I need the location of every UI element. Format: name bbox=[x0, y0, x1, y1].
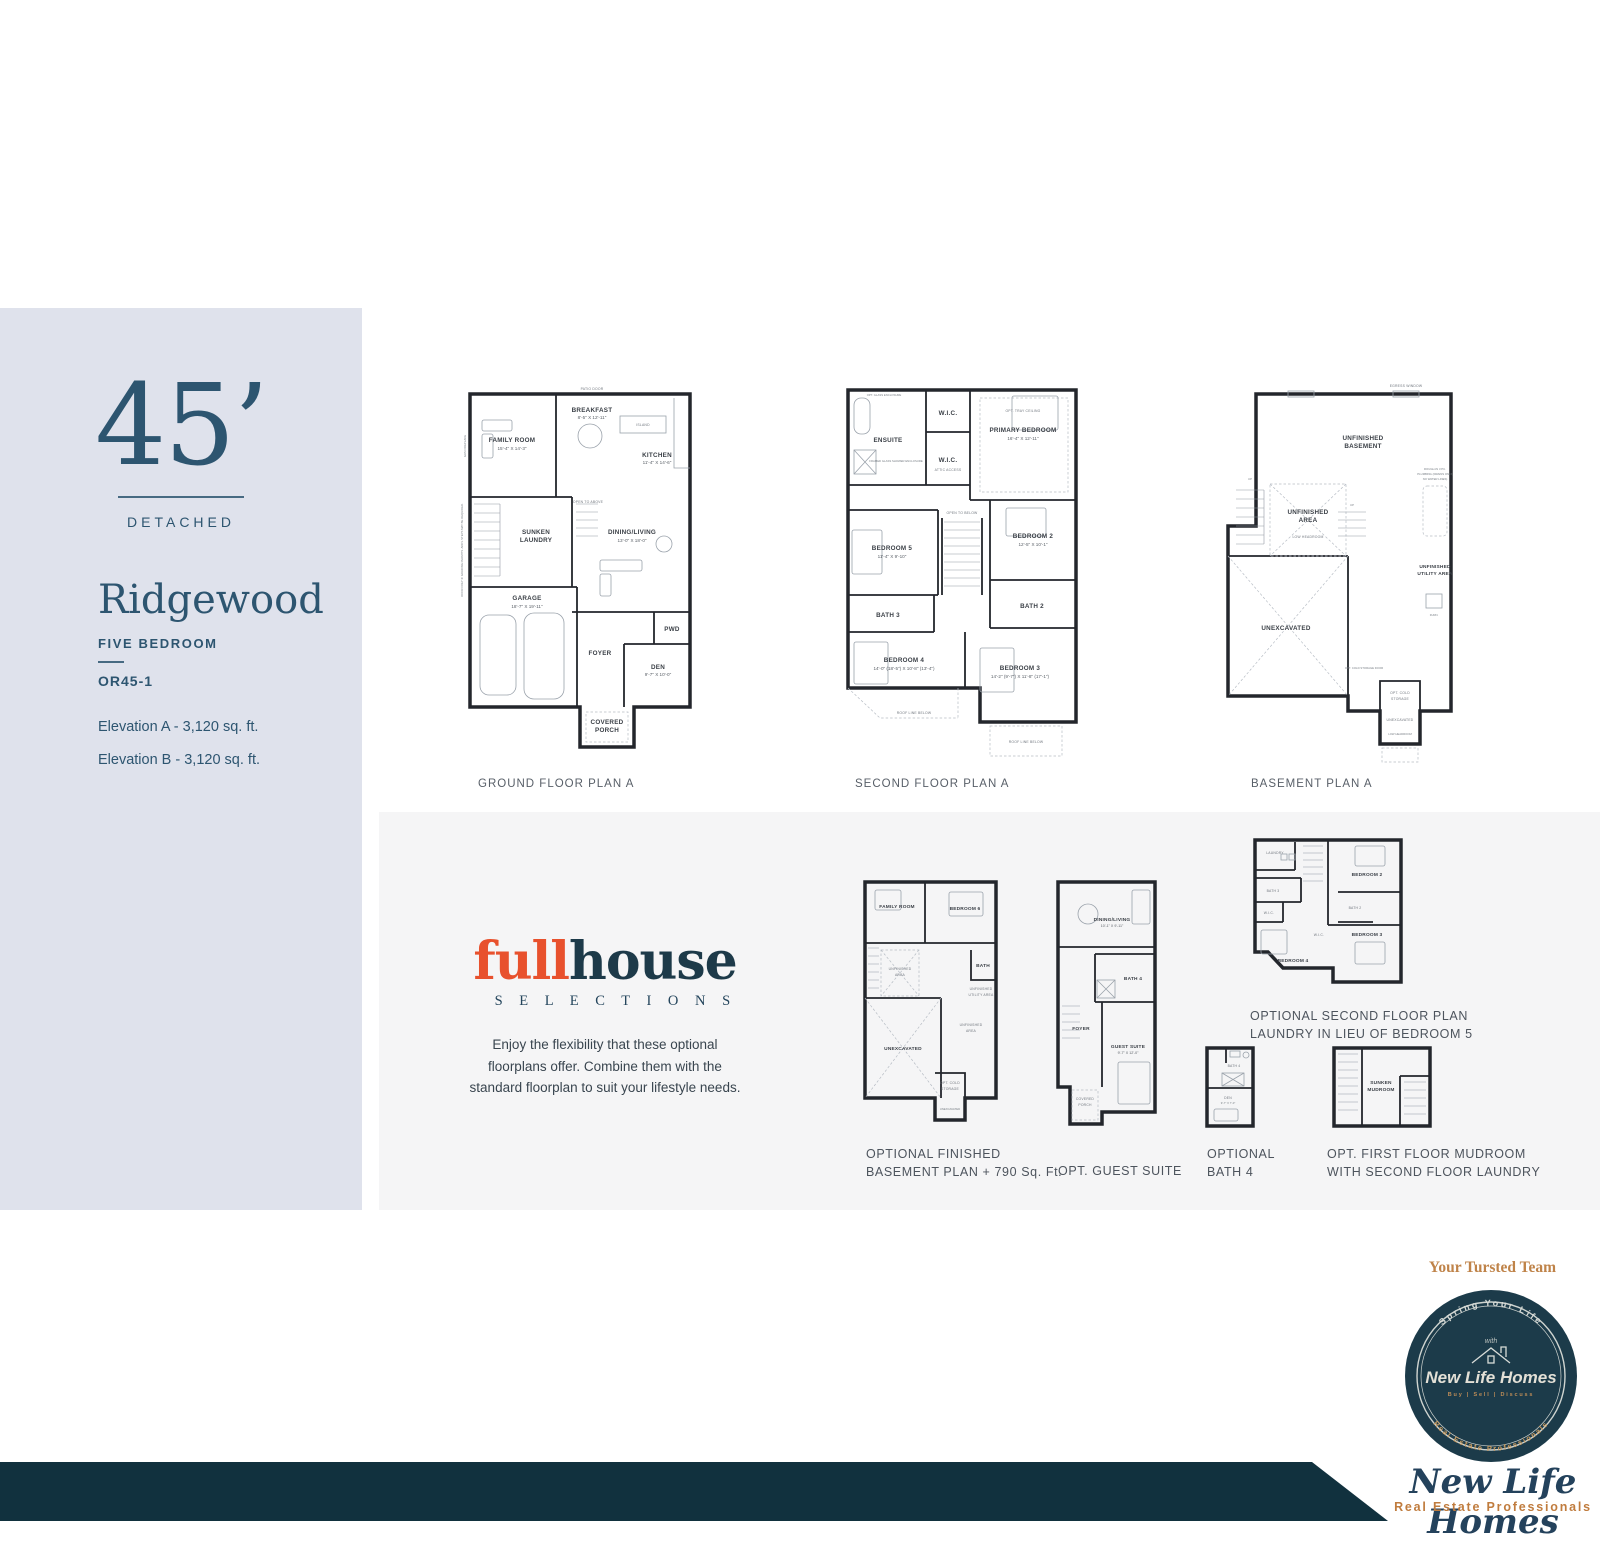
room-dim: 11'-4" X 14'-6" bbox=[643, 460, 672, 465]
lot-width: 45’ bbox=[71, 370, 291, 482]
room-label: BATH 4 bbox=[1228, 1064, 1241, 1068]
room-label: UTILITY AREA bbox=[1417, 571, 1453, 577]
note-label: UP bbox=[1248, 477, 1252, 481]
optional-basement-caption: OPTIONAL FINISHED BASEMENT PLAN + 790 Sq… bbox=[866, 1145, 1062, 1181]
note-label: OPT. GLASS ENCLOSURE bbox=[867, 393, 902, 397]
room-label: UNFINISHED bbox=[960, 1023, 983, 1027]
room-label: MUDROOM bbox=[1367, 1087, 1394, 1093]
room-label: STORAGE bbox=[1391, 697, 1409, 701]
ground-floor-plan: FAMILY ROOM 15'-4" X 14'-3" BREAKFAST 8'… bbox=[452, 372, 708, 762]
walls bbox=[1334, 1048, 1430, 1126]
room-dim: 12'-5" X 10'-1" bbox=[1018, 542, 1047, 547]
optional-mudroom-caption: OPT. FIRST FLOOR MUDROOM WITH SECOND FLO… bbox=[1327, 1145, 1540, 1181]
note-label: FURN. bbox=[1430, 613, 1439, 617]
model-divider bbox=[98, 661, 124, 663]
optional-guest-caption: OPT. GUEST SUITE bbox=[1058, 1162, 1182, 1180]
room-dim: 9'-7" X 10'-0" bbox=[645, 672, 672, 677]
room-label: SUNKEN bbox=[1370, 1080, 1392, 1086]
signature-tagline: Real Estate Professionals bbox=[1393, 1500, 1593, 1514]
lot-width-divider bbox=[118, 496, 244, 498]
room-label: OPT. COLD bbox=[940, 1081, 960, 1085]
room-dim: 16'-4" X 12'-11" bbox=[1007, 436, 1039, 441]
fullhouse-desc-line: Enjoy the flexibility that these optiona… bbox=[425, 1034, 785, 1056]
optional-bath4-caption: OPTIONAL BATH 4 bbox=[1207, 1145, 1275, 1181]
walls bbox=[1228, 394, 1451, 744]
stairs bbox=[1236, 391, 1442, 608]
model-name: Ridgewood bbox=[98, 578, 338, 622]
note-label: ROUGH-IN 3 PC. bbox=[1424, 467, 1446, 471]
room-dim: 9'-7" X 12'-0" bbox=[1118, 1051, 1139, 1055]
room-label: UNEXCAVATED bbox=[940, 1107, 960, 1111]
note-label: OPEN TO BELOW bbox=[947, 511, 979, 515]
note-label: OPT. COLD STORAGE DOOR bbox=[1345, 666, 1383, 670]
note-label: GAS FIREPLACE bbox=[463, 435, 467, 457]
model-info-sidebar: 45’ DETACHED Ridgewood FIVE BEDROOM OR45… bbox=[0, 308, 362, 1210]
island-label: ISLAND bbox=[636, 423, 650, 427]
lot-width-block: 45’ DETACHED bbox=[71, 370, 291, 530]
room-label: FAMILY ROOM bbox=[489, 437, 535, 444]
note-label: NO WATER LINES) bbox=[1423, 477, 1448, 481]
room-label: OPT. COLD bbox=[1390, 691, 1410, 695]
room-label: ENSUITE bbox=[873, 437, 902, 444]
optional-second-floor-plan: LAUNDRY BATH 3 W.I.C. BEDROOM 4 W.I.C. B… bbox=[1243, 830, 1410, 1000]
optional-guest-suite-plan: DINING/LIVING 10'-1" X 9'-11" BATH 4 FOY… bbox=[1040, 872, 1165, 1132]
room-label: UNFINISHED bbox=[970, 987, 993, 991]
room-label: PORCH bbox=[1078, 1103, 1092, 1107]
room-label: W.I.C. bbox=[1314, 933, 1324, 937]
fullhouse-logo-house: house bbox=[569, 931, 737, 992]
note-label: OPT. TRAY CEILING bbox=[1005, 409, 1040, 413]
fullhouse-desc-line: standard floorplan to suit your lifestyl… bbox=[425, 1077, 785, 1099]
hatching bbox=[865, 890, 983, 1098]
caption-line: OPTIONAL SECOND FLOOR PLAN bbox=[1250, 1007, 1473, 1025]
note-label: LOW HEADROOM bbox=[1388, 732, 1412, 736]
room-label: AREA bbox=[966, 1029, 977, 1033]
room-label: UNEXCAVATED bbox=[1387, 718, 1414, 722]
note-label: PLUMBING (DRAINS ONLY, bbox=[1417, 472, 1453, 476]
room-label: DEN bbox=[1224, 1096, 1232, 1100]
elevation-info: Elevation A - 3,120 sq. ft. Elevation B … bbox=[98, 711, 338, 778]
note-label: PATIO DOOR bbox=[581, 387, 604, 391]
note-label: LOW HEADROOM bbox=[1292, 535, 1323, 539]
room-dim: 11'-4" X 9'-10" bbox=[878, 554, 907, 559]
room-label: W.I.C. bbox=[1264, 911, 1274, 915]
room-label: BEDROOM 5 bbox=[872, 545, 913, 552]
optional-mudroom-plan: SUNKEN MUDROOM bbox=[1328, 1042, 1436, 1132]
room-dim: 8'-5" X 12'-11" bbox=[578, 415, 607, 420]
room-label: UNEXCAVATED bbox=[884, 1046, 922, 1052]
note-label: FRAMED GLASS SHOWER ENCLOSURE bbox=[869, 459, 923, 463]
badge-name: New Life Homes bbox=[1425, 1368, 1556, 1387]
room-label: BATH 4 bbox=[1124, 976, 1142, 982]
room-label: BATH 2 bbox=[1349, 906, 1362, 910]
room-label: UTILITY AREA bbox=[969, 993, 994, 997]
basement-plan-caption: BASEMENT PLAN A bbox=[1251, 778, 1373, 790]
note-label: ROOF LINE BELOW bbox=[897, 711, 932, 715]
room-label: GARAGE bbox=[512, 595, 541, 602]
model-block: Ridgewood FIVE BEDROOM OR45-1 Elevation … bbox=[98, 578, 338, 778]
optional-bath4-plan: BATH 4 DEN 9'-7" X 7'-0" bbox=[1202, 1043, 1258, 1131]
room-dim: 15'-4" X 14'-3" bbox=[497, 446, 526, 451]
room-label: BEDROOM 4 bbox=[884, 657, 925, 664]
room-label: AREA bbox=[895, 973, 906, 977]
details bbox=[1214, 1051, 1249, 1121]
caption-line: BATH 4 bbox=[1207, 1163, 1275, 1181]
note-label: DOOR ONLY IF GRADING PERMITS. ADD'L STEP… bbox=[460, 503, 464, 597]
room-labels: FAMILY ROOM BEDROOM 6 UNFINISHED AREA BA… bbox=[879, 904, 994, 1111]
room-label: GUEST SUITE bbox=[1111, 1044, 1146, 1050]
room-label: SUNKEN bbox=[522, 529, 550, 536]
trusted-team-label: Your Tursted Team bbox=[1395, 1259, 1590, 1277]
room-label: DEN bbox=[651, 664, 665, 671]
room-label: BEDROOM 4 bbox=[1278, 958, 1309, 964]
caption-line: OPT. GUEST SUITE bbox=[1058, 1162, 1182, 1180]
elevation-b: Elevation B - 3,120 sq. ft. bbox=[98, 744, 338, 777]
room-dim: 14'-2" (9'-7") X 11'-8" (17'-1") bbox=[991, 674, 1050, 679]
caption-line: OPTIONAL bbox=[1207, 1145, 1275, 1163]
second-plan-caption: SECOND FLOOR PLAN A bbox=[855, 778, 1009, 790]
room-label: COVERED bbox=[591, 719, 624, 726]
caption-line: OPT. FIRST FLOOR MUDROOM bbox=[1327, 1145, 1540, 1163]
room-label: UNEXCAVATED bbox=[1261, 625, 1310, 632]
room-label: BEDROOM 3 bbox=[1352, 932, 1383, 938]
room-label: UNFINISHED bbox=[889, 967, 912, 971]
caption-line: BASEMENT PLAN + 790 Sq. Ft. bbox=[866, 1163, 1062, 1181]
room-labels: LAUNDRY BATH 3 W.I.C. BEDROOM 4 W.I.C. B… bbox=[1264, 851, 1383, 964]
room-label: DINING/LIVING bbox=[608, 529, 656, 536]
room-label: UNFINISHED bbox=[1288, 509, 1329, 516]
model-code: OR45-1 bbox=[98, 673, 338, 689]
room-label: LAUNDRY bbox=[520, 537, 553, 544]
room-label: COVERED bbox=[1076, 1097, 1095, 1101]
room-label: W.I.C. bbox=[939, 410, 958, 417]
room-dim: 13'-0" X 18'-0" bbox=[617, 538, 646, 543]
room-label: BATH bbox=[976, 963, 990, 969]
room-label: BATH 3 bbox=[1267, 889, 1280, 893]
bedroom-count-label: FIVE BEDROOM bbox=[98, 636, 338, 651]
note-label: UP bbox=[1350, 503, 1354, 507]
room-label: BEDROOM 2 bbox=[1013, 533, 1054, 540]
room-label: FOYER bbox=[589, 650, 612, 657]
second-floor-plan: ENSUITE W.I.C. W.I.C. ATTIC ACCESS OPT. … bbox=[830, 370, 1092, 765]
fullhouse-logo: fullhouse S E L E C T I O N S bbox=[473, 936, 736, 1009]
fullhouse-block: fullhouse S E L E C T I O N S Enjoy the … bbox=[425, 936, 785, 1099]
fullhouse-description: Enjoy the flexibility that these optiona… bbox=[425, 1034, 785, 1099]
note-label: EGRESS WINDOW bbox=[1390, 384, 1423, 388]
room-label: UNFINISHED bbox=[1419, 564, 1451, 570]
room-label: PRIMARY BEDROOM bbox=[989, 427, 1056, 434]
room-label: BREAKFAST bbox=[572, 407, 613, 414]
footer-ribbon bbox=[0, 1462, 1600, 1521]
caption-line: WITH SECOND FLOOR LAUNDRY bbox=[1327, 1163, 1540, 1181]
optional-second-caption: OPTIONAL SECOND FLOOR PLAN LAUNDRY IN LI… bbox=[1250, 1007, 1473, 1043]
room-label: PWD bbox=[664, 626, 680, 633]
room-label: BEDROOM 6 bbox=[950, 906, 981, 912]
room-label: STORAGE bbox=[941, 1087, 959, 1091]
home-type-label: DETACHED bbox=[71, 514, 291, 530]
room-label: LAUNDRY bbox=[1266, 851, 1284, 855]
room-label: FOYER bbox=[1072, 1026, 1090, 1032]
room-label: KITCHEN bbox=[642, 452, 672, 459]
fullhouse-selections-label: S E L E C T I O N S bbox=[473, 994, 736, 1009]
note-label: ATTIC ACCESS bbox=[935, 468, 962, 472]
ground-plan-caption: GROUND FLOOR PLAN A bbox=[478, 778, 634, 790]
room-label: FAMILY ROOM bbox=[879, 904, 915, 910]
fullhouse-logo-full: full bbox=[473, 931, 569, 992]
note-label: OPEN TO ABOVE bbox=[573, 500, 604, 504]
basement-plan: UNFINISHED BASEMENT UNFINISHED AREA LOW … bbox=[1198, 366, 1483, 766]
room-label: AREA bbox=[1299, 517, 1318, 524]
details bbox=[1261, 846, 1385, 964]
room-label: DINING/LIVING bbox=[1094, 917, 1131, 923]
roof-lines bbox=[848, 398, 1068, 756]
stairs bbox=[944, 522, 980, 586]
room-label: BATH 2 bbox=[1020, 603, 1044, 610]
badge-with-word: with bbox=[1485, 1338, 1498, 1345]
room-dim: 10'-1" X 9'-11" bbox=[1101, 924, 1124, 928]
room-labels: UNFINISHED BASEMENT UNFINISHED AREA LOW … bbox=[1248, 384, 1453, 736]
caption-line: OPTIONAL FINISHED bbox=[866, 1145, 1062, 1163]
room-label: PORCH bbox=[595, 727, 619, 734]
room-label: BEDROOM 3 bbox=[1000, 665, 1041, 672]
room-labels: BATH 4 DEN 9'-7" X 7'-0" bbox=[1221, 1064, 1241, 1105]
room-label: W.I.C. bbox=[939, 457, 958, 464]
room-dim: 14'-0" (18'-5") X 10'-8" (13'-4") bbox=[873, 666, 935, 671]
new-life-homes-badge: Spring Your Life with New Life Homes Buy… bbox=[1398, 1283, 1584, 1469]
room-labels: FAMILY ROOM 15'-4" X 14'-3" BREAKFAST 8'… bbox=[460, 387, 680, 734]
room-dim: 18'-7" X 19'-11" bbox=[511, 604, 543, 609]
room-labels: DINING/LIVING 10'-1" X 9'-11" BATH 4 FOY… bbox=[1072, 917, 1145, 1107]
fullhouse-desc-line: floorplans offer. Combine them with the bbox=[425, 1056, 785, 1078]
caption-line: LAUNDRY IN LIEU OF BEDROOM 5 bbox=[1250, 1025, 1473, 1043]
badge-services: Buy | Sell | Discuss bbox=[1448, 1392, 1534, 1398]
optional-basement-plan: FAMILY ROOM BEDROOM 6 UNFINISHED AREA BA… bbox=[853, 868, 1008, 1128]
room-label: BASEMENT bbox=[1344, 443, 1381, 450]
room-labels: SUNKEN MUDROOM bbox=[1367, 1080, 1394, 1093]
room-dim: 9'-7" X 7'-0" bbox=[1221, 1101, 1236, 1105]
note-label: ROOF LINE BELOW bbox=[1009, 740, 1044, 744]
elevation-a: Elevation A - 3,120 sq. ft. bbox=[98, 711, 338, 744]
room-label: UNFINISHED bbox=[1343, 435, 1384, 442]
room-label: BEDROOM 2 bbox=[1352, 872, 1383, 878]
room-labels: ENSUITE W.I.C. W.I.C. ATTIC ACCESS OPT. … bbox=[867, 393, 1057, 744]
room-label: BATH 3 bbox=[876, 612, 900, 619]
